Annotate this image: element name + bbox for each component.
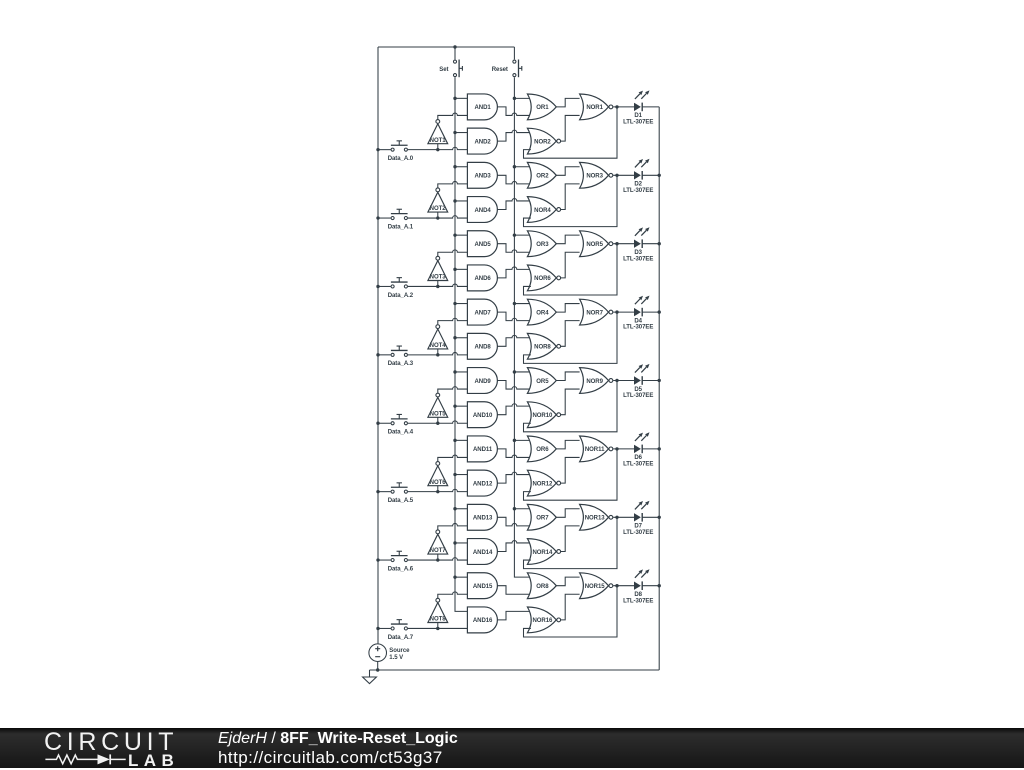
svg-text:LTL-307EE: LTL-307EE: [623, 325, 653, 331]
svg-text:OR2: OR2: [536, 174, 549, 180]
svg-text:NOT4: NOT4: [430, 343, 447, 349]
svg-text:D7: D7: [634, 524, 642, 530]
svg-text:Data_A.7: Data_A.7: [388, 635, 414, 641]
svg-text:Data_A.6: Data_A.6: [388, 566, 414, 572]
svg-text:NOT6: NOT6: [430, 480, 447, 486]
svg-text:NOR15: NOR15: [585, 584, 606, 590]
svg-text:AND3: AND3: [474, 174, 491, 180]
svg-text:NOR8: NOR8: [534, 345, 551, 351]
svg-text:NOR12: NOR12: [532, 481, 553, 487]
svg-text:D6: D6: [634, 455, 642, 461]
svg-text:D3: D3: [634, 250, 642, 256]
svg-text:AND11: AND11: [473, 447, 493, 453]
svg-text:NOR4: NOR4: [534, 208, 551, 214]
svg-text:AND4: AND4: [474, 208, 491, 214]
svg-text:AND14: AND14: [473, 550, 493, 556]
svg-text:AND6: AND6: [474, 276, 491, 282]
svg-text:Data_A.2: Data_A.2: [388, 293, 414, 299]
svg-text:AND8: AND8: [474, 345, 491, 351]
svg-text:AND2: AND2: [474, 139, 491, 145]
svg-text:AND16: AND16: [473, 618, 493, 624]
svg-text:NOR16: NOR16: [532, 618, 553, 624]
svg-text:NOR3: NOR3: [586, 174, 603, 180]
svg-text:LTL-307EE: LTL-307EE: [623, 188, 653, 194]
svg-text:Source: Source: [389, 648, 410, 654]
svg-text:NOT7: NOT7: [430, 548, 447, 554]
svg-text:OR4: OR4: [536, 310, 549, 316]
svg-text:NOR13: NOR13: [585, 516, 606, 522]
svg-text:1.5 V: 1.5 V: [389, 655, 403, 661]
svg-text:Data_A.5: Data_A.5: [388, 498, 414, 504]
svg-text:AND5: AND5: [474, 242, 491, 248]
svg-text:NOT8: NOT8: [430, 617, 447, 623]
svg-text:NOR14: NOR14: [532, 550, 553, 556]
svg-text:AND9: AND9: [474, 379, 491, 385]
svg-text:NOR2: NOR2: [534, 139, 551, 145]
svg-text:NOT3: NOT3: [430, 275, 447, 281]
svg-text:D5: D5: [634, 387, 642, 393]
svg-text:LTL-307EE: LTL-307EE: [623, 530, 653, 536]
svg-text:Data_A.4: Data_A.4: [388, 430, 414, 436]
svg-text:NOR6: NOR6: [534, 276, 551, 282]
svg-text:Data_A.3: Data_A.3: [388, 361, 414, 367]
svg-text:AND1: AND1: [474, 105, 491, 111]
svg-text:LTL-307EE: LTL-307EE: [623, 462, 653, 468]
svg-text:D2: D2: [634, 182, 642, 188]
svg-text:Reset: Reset: [492, 67, 508, 73]
svg-text:Set: Set: [439, 67, 448, 73]
svg-text:LTL-307EE: LTL-307EE: [623, 256, 653, 262]
svg-text:AND13: AND13: [473, 516, 493, 522]
svg-text:AND7: AND7: [474, 310, 491, 316]
svg-text:NOR5: NOR5: [586, 242, 603, 248]
svg-text:OR3: OR3: [536, 242, 549, 248]
svg-text:LTL-307EE: LTL-307EE: [623, 598, 653, 604]
svg-text:NOR10: NOR10: [532, 413, 553, 419]
svg-text:NOR1: NOR1: [586, 105, 603, 111]
svg-text:Data_A.1: Data_A.1: [388, 224, 414, 230]
svg-text:NOR9: NOR9: [586, 379, 603, 385]
svg-text:NOT2: NOT2: [430, 206, 447, 212]
svg-text:AND10: AND10: [473, 413, 493, 419]
svg-text:AND15: AND15: [473, 584, 493, 590]
svg-text:OR8: OR8: [536, 584, 549, 590]
svg-text:AND12: AND12: [473, 481, 493, 487]
svg-text:OR6: OR6: [536, 447, 549, 453]
svg-text:OR7: OR7: [536, 516, 549, 522]
svg-text:LTL-307EE: LTL-307EE: [623, 120, 653, 126]
svg-text:OR5: OR5: [536, 379, 549, 385]
svg-text:D4: D4: [634, 318, 642, 324]
svg-text:D1: D1: [634, 113, 642, 119]
svg-text:NOR7: NOR7: [586, 310, 603, 316]
svg-text:LTL-307EE: LTL-307EE: [623, 393, 653, 399]
svg-text:NOT1: NOT1: [430, 138, 447, 144]
svg-text:NOR11: NOR11: [585, 447, 605, 453]
svg-text:Data_A.0: Data_A.0: [388, 156, 414, 162]
svg-text:NOT5: NOT5: [430, 411, 447, 417]
svg-text:OR1: OR1: [536, 105, 549, 111]
svg-text:D8: D8: [634, 592, 642, 598]
